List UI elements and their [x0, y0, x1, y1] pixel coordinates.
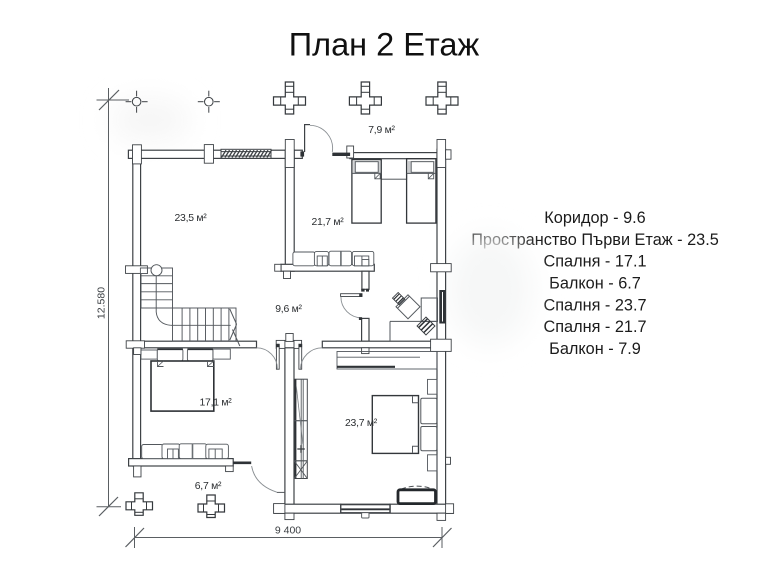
svg-text:Балкон - 6.7: Балкон - 6.7	[549, 275, 641, 293]
svg-text:12.580: 12.580	[96, 287, 108, 319]
svg-text:6,7 м²: 6,7 м²	[195, 481, 222, 492]
svg-text:9 400: 9 400	[275, 525, 301, 537]
svg-text:План 2 Етаж: План 2 Етаж	[289, 27, 480, 63]
svg-text:17,1 м²: 17,1 м²	[200, 398, 233, 409]
svg-text:23,7 м²: 23,7 м²	[345, 418, 378, 429]
svg-text:21,7 м²: 21,7 м²	[312, 217, 345, 228]
svg-text:Спалня - 23.7: Спалня - 23.7	[543, 296, 646, 314]
svg-text:Балкон - 7.9: Балкон - 7.9	[549, 340, 641, 358]
svg-text:9,6 м²: 9,6 м²	[275, 304, 302, 315]
svg-text:Спалня - 21.7: Спалня - 21.7	[543, 318, 646, 336]
svg-text:Спалня - 17.1: Спалня - 17.1	[543, 253, 646, 271]
svg-text:23,5 м²: 23,5 м²	[175, 213, 208, 224]
svg-text:Коридор - 9.6: Коридор - 9.6	[544, 209, 645, 227]
svg-text:7,9 м²: 7,9 м²	[368, 125, 395, 136]
